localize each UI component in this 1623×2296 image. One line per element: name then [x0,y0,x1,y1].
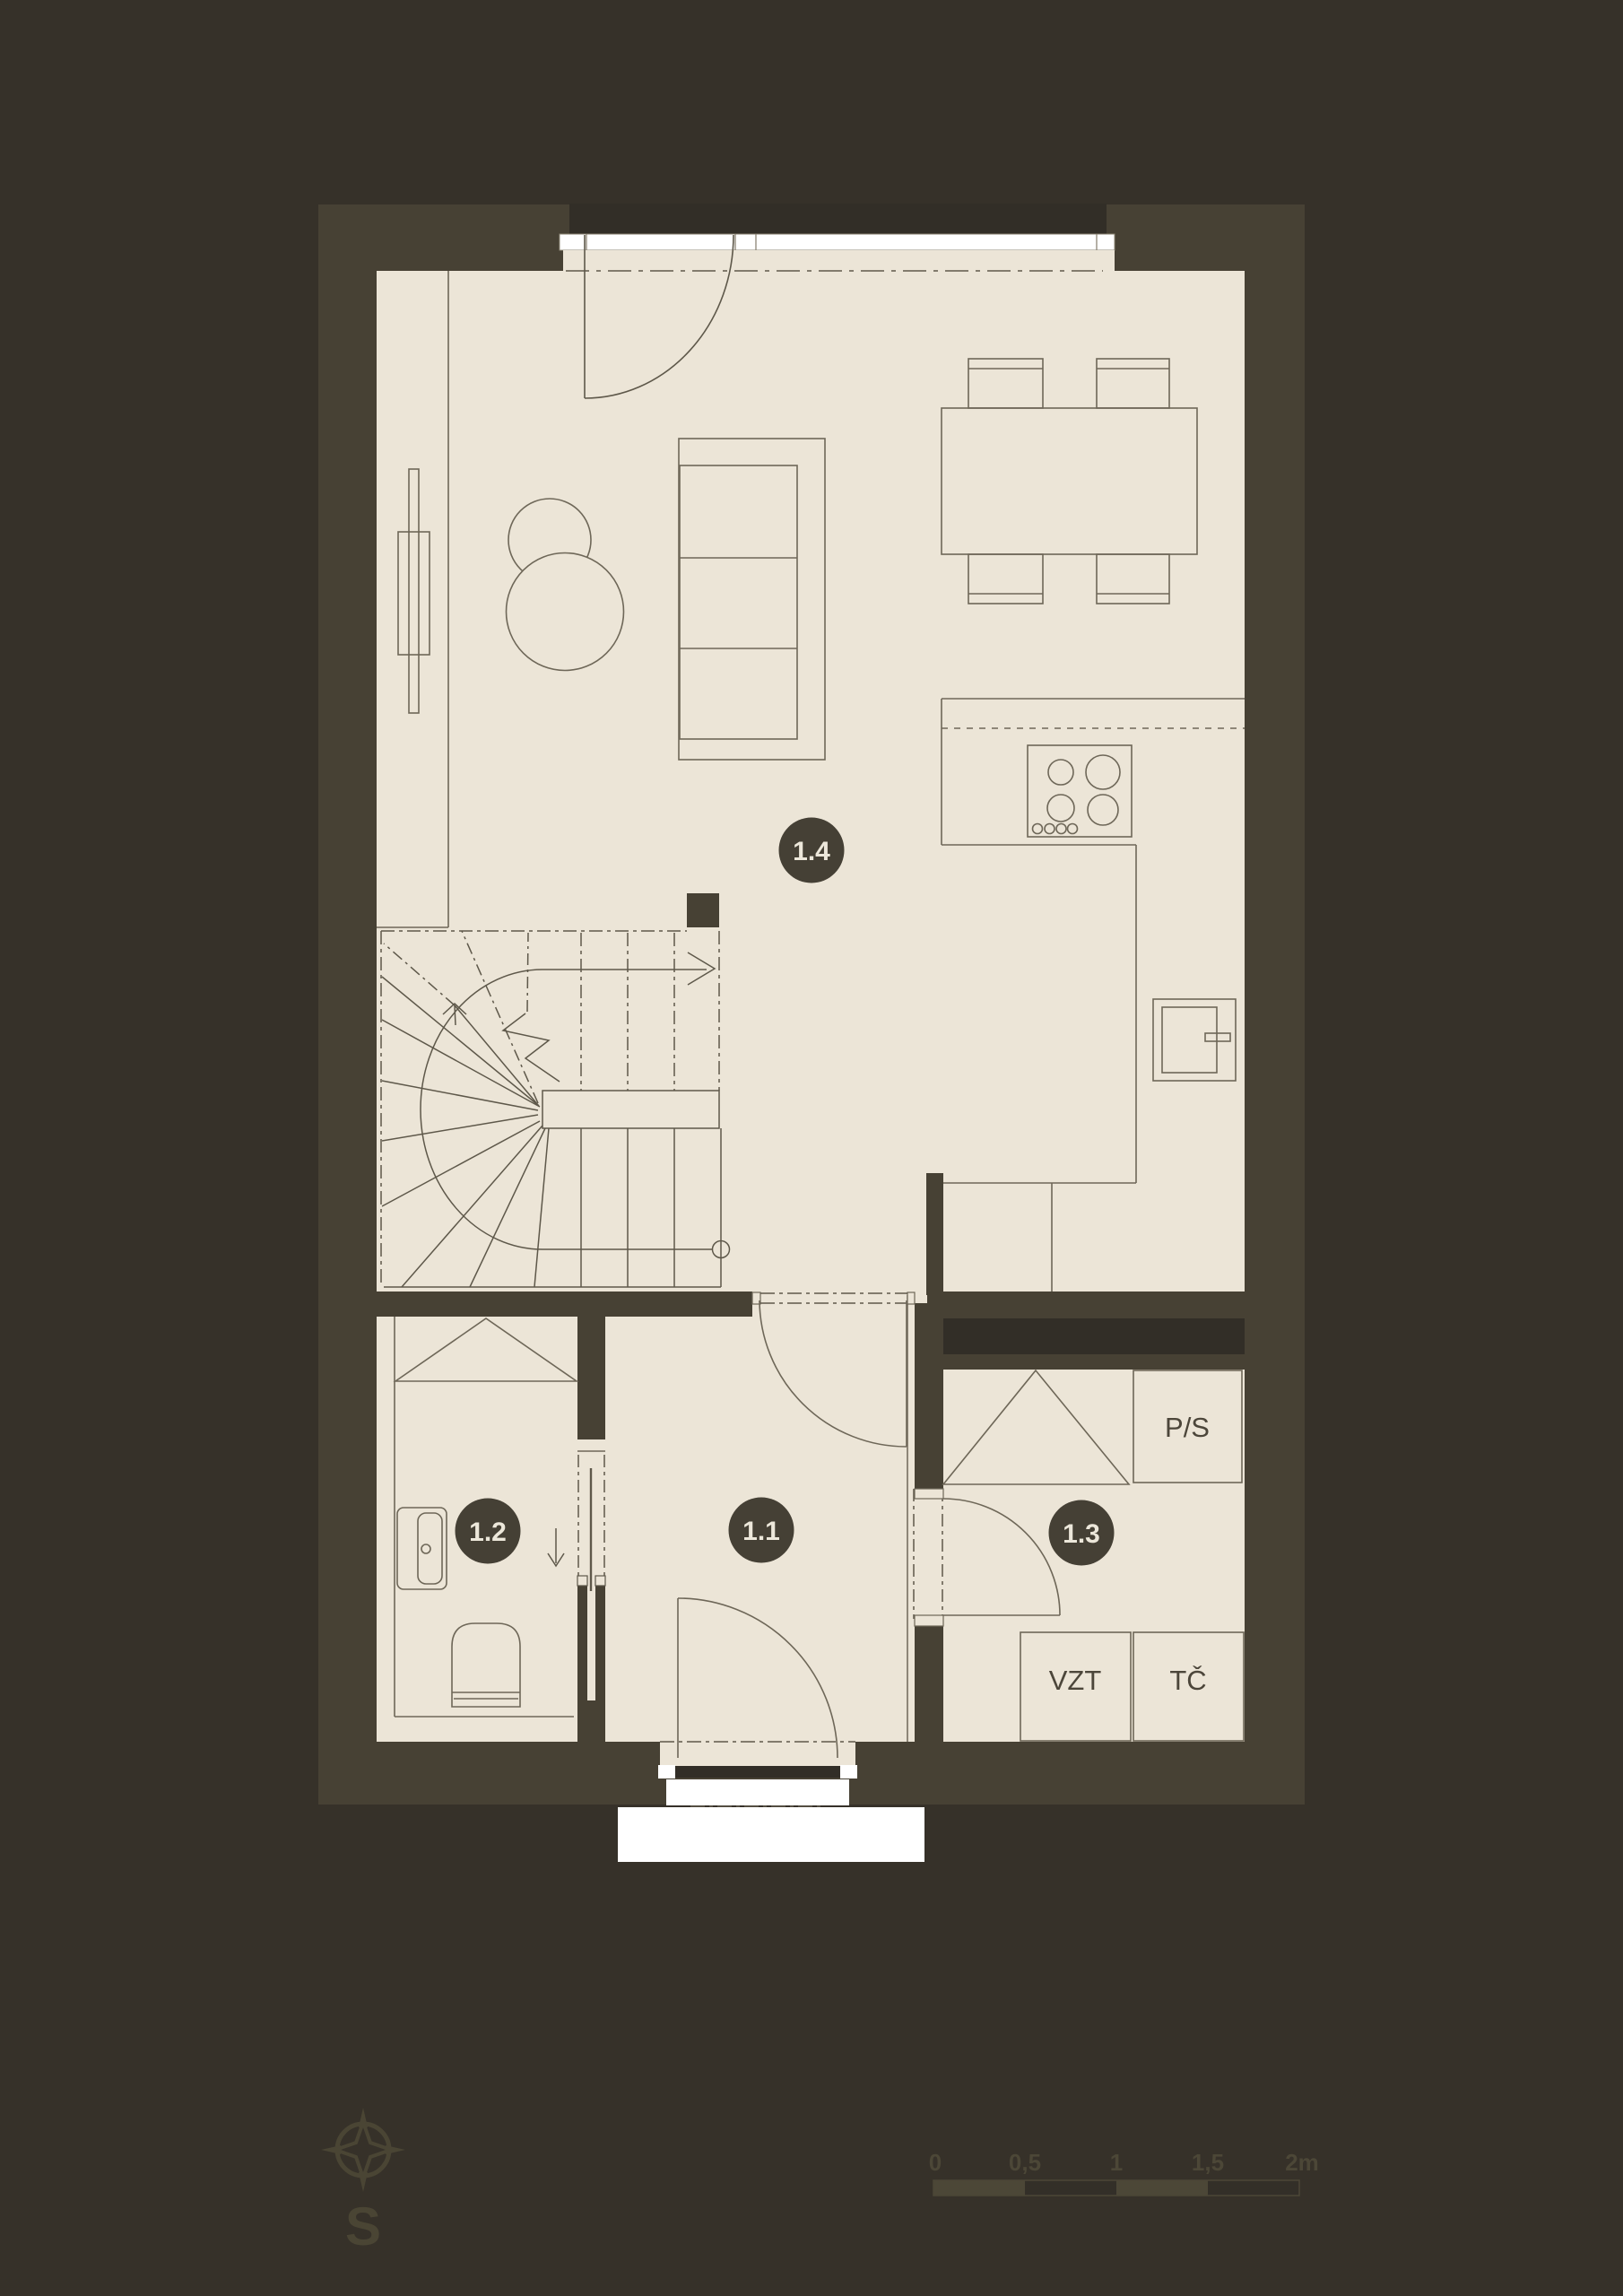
svg-text:0,5: 0,5 [1009,2149,1041,2176]
svg-text:1.4: 1.4 [793,837,830,866]
svg-text:1.2: 1.2 [469,1518,507,1547]
svg-text:1,5: 1,5 [1192,2149,1224,2176]
svg-text:1.1: 1.1 [742,1517,780,1546]
svg-text:TČ: TČ [1169,1665,1206,1696]
svg-text:P/S: P/S [1165,1412,1210,1443]
svg-text:1.3: 1.3 [1063,1519,1100,1549]
svg-text:0: 0 [929,2149,942,2176]
svg-text:VZT: VZT [1049,1665,1102,1696]
svg-text:2m: 2m [1285,2149,1319,2176]
svg-text:S: S [345,2196,381,2257]
svg-text:1: 1 [1110,2149,1123,2176]
